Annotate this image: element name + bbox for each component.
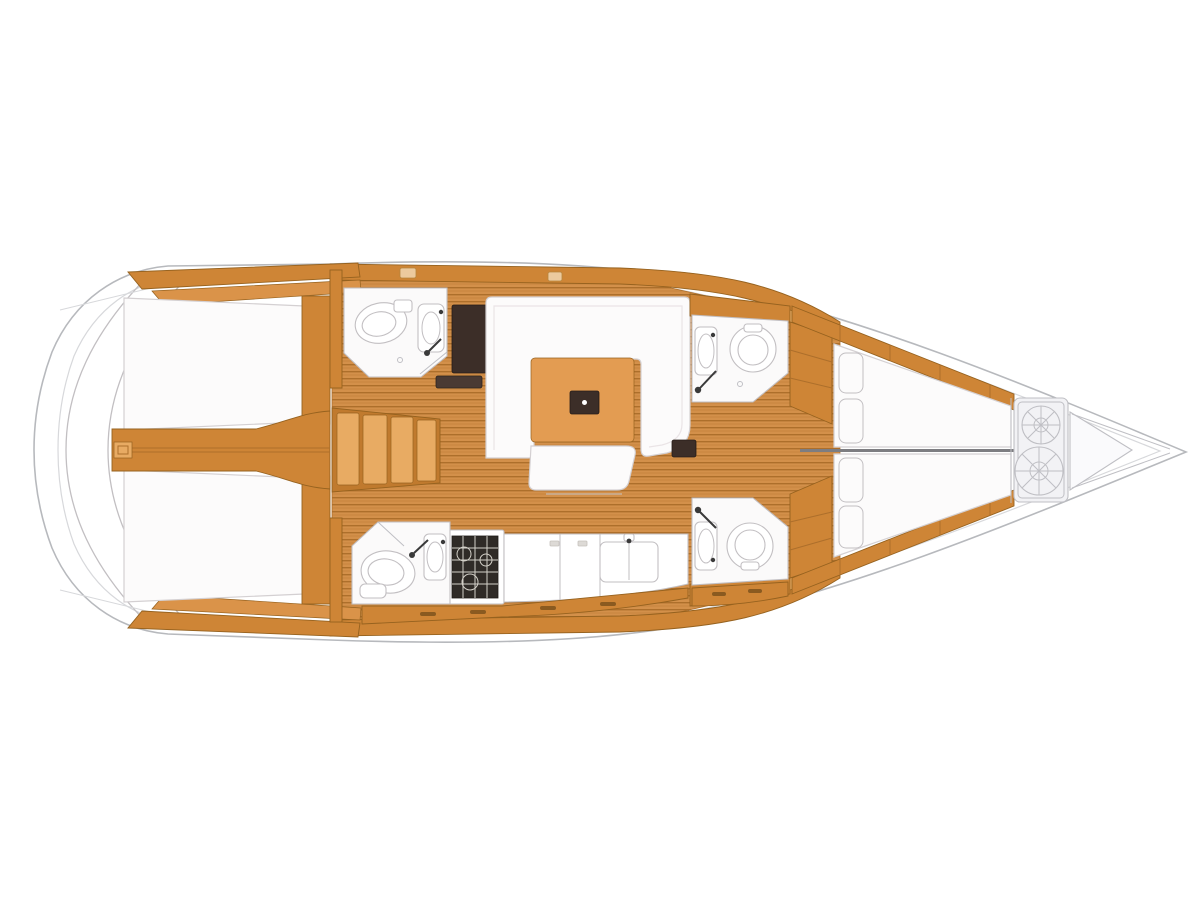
rope-coil-small bbox=[1022, 406, 1060, 444]
sink bbox=[695, 522, 717, 570]
cabin-bulkhead bbox=[302, 476, 330, 604]
aft-cabin-top bbox=[124, 263, 361, 430]
double-berth-top bbox=[124, 298, 304, 430]
corner-locker bbox=[672, 440, 696, 457]
sink bbox=[695, 327, 717, 375]
step bbox=[363, 415, 387, 484]
hatch-latch bbox=[400, 268, 416, 278]
salon-table bbox=[531, 358, 634, 442]
hatch-latch bbox=[548, 272, 562, 281]
toilet bbox=[727, 523, 773, 570]
bulkhead bbox=[330, 270, 342, 388]
rope-coil-large bbox=[1015, 447, 1063, 495]
stove bbox=[446, 530, 504, 604]
salon-bench bbox=[529, 446, 635, 490]
cabin-bulkhead bbox=[302, 296, 330, 424]
engine-hatch bbox=[114, 442, 132, 458]
yacht-floor-plan: Sailing yacht interior layout plan bbox=[0, 0, 1200, 900]
bulkhead bbox=[330, 518, 342, 622]
sink bbox=[418, 304, 444, 352]
yacht-floor-plan-canvas: Sailing yacht interior layout plan bbox=[0, 0, 1200, 900]
shower-head-aft-of-galley bbox=[352, 522, 450, 604]
step bbox=[337, 413, 359, 485]
step bbox=[391, 417, 413, 483]
step bbox=[417, 420, 436, 481]
companionway-steps bbox=[332, 408, 440, 492]
aft-cabin-bottom bbox=[124, 470, 361, 637]
double-berth-bottom bbox=[124, 470, 304, 602]
aft-head-wc bbox=[344, 288, 447, 377]
